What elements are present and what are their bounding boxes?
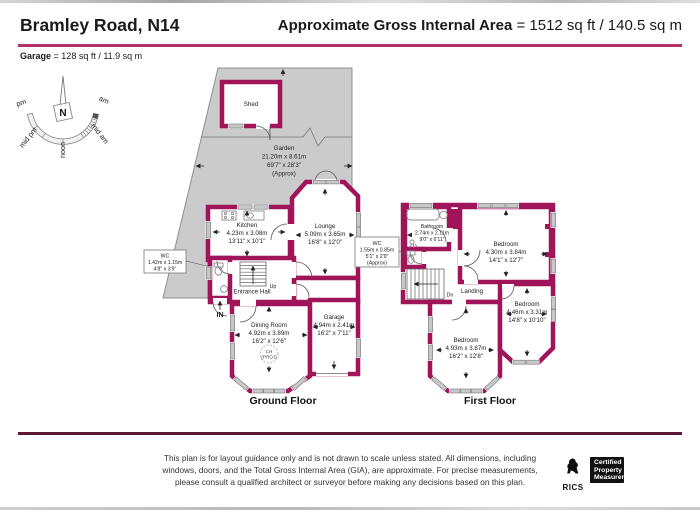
stairs-dn-label: Dn — [447, 293, 454, 299]
compass-noon: noon — [58, 142, 67, 158]
compass-rose: N pm am mid pm noon mid am — [15, 76, 111, 158]
bathroom-imperial: 9'0" x 6'11" — [419, 237, 444, 243]
garage-metric: 4.94m x 2.41m — [314, 322, 355, 329]
svg-text:1.55m x 0.85m: 1.55m x 0.85m — [360, 248, 394, 254]
kitchen-imperial: 13'11" x 10'1" — [229, 238, 266, 245]
entrance-hall-name: Entrance Hall — [233, 289, 270, 296]
bedroom2-imperial: 16'2" x 12'8" — [449, 353, 483, 360]
kitchen-name: Kitchen — [237, 222, 258, 229]
bathroom-metric: 2.74m x 2.11m — [415, 231, 449, 237]
lounge-name: Lounge — [315, 223, 336, 230]
dining-room-shape — [232, 304, 310, 391]
compass-pm: pm — [15, 97, 27, 109]
bedroom1-name: Bedroom — [493, 241, 518, 248]
svg-text:WC: WC — [373, 241, 382, 247]
svg-text:WC: WC — [161, 254, 170, 260]
ground-floor-label: Ground Floor — [249, 395, 316, 407]
lounge-imperial: 16'8" x 12'0" — [308, 239, 342, 246]
compass-mid-am: mid am — [89, 121, 111, 145]
garden-name: Garden — [274, 145, 295, 152]
svg-text:CH: CH — [266, 349, 273, 354]
bedroom1-metric: 4.30m x 3.84m — [486, 249, 527, 256]
garage-name: Garage — [324, 314, 345, 321]
svg-text:5'1" x 2'9": 5'1" x 2'9" — [366, 254, 389, 260]
bathroom-name: Bathroom — [421, 224, 444, 230]
svg-text:4'8" x 3'9": 4'8" x 3'9" — [154, 267, 177, 273]
compass-mid-pm: mid pm — [17, 125, 39, 149]
disclaimer-text: This plan is for layout guidance only an… — [140, 452, 560, 488]
lounge-room — [292, 182, 358, 278]
dining-metric: 4.92m x 3.89m — [249, 330, 290, 337]
compass-am: am — [98, 94, 111, 106]
footer-divider — [18, 432, 682, 435]
shed-name: Shed — [244, 101, 259, 108]
stairs-up-label: Up — [270, 284, 277, 290]
svg-text:1.42m x 1.15m: 1.42m x 1.15m — [148, 260, 182, 266]
bedroom3-imperial: 14'8" x 10'10" — [508, 317, 545, 324]
floorplan-page: Bramley Road, N14 Approximate Gross Inte… — [0, 0, 700, 510]
bedroom2-metric: 4.93m x 3.87m — [446, 345, 487, 352]
rics-logo: RICS — [560, 457, 586, 492]
certified-property-measurer-badge: Certified Property Measurer — [590, 457, 624, 483]
dining-name: Dining Room — [251, 322, 287, 329]
stairs-first — [407, 269, 444, 299]
lounge-metric: 5.09m x 3.65m — [305, 231, 346, 238]
svg-text:(Approx): (Approx) — [367, 261, 387, 267]
rics-wordmark: RICS — [560, 483, 586, 492]
bedroom3-metric: 4.46m x 3.31m — [507, 309, 548, 316]
garden-imperial: 69'7" x 28'3" — [267, 162, 301, 169]
kitchen-metric: 4.23m x 3.08m — [227, 230, 268, 237]
garden-metric: 21.20m x 8.61m — [262, 154, 306, 161]
rics-lion-icon — [563, 457, 583, 477]
first-floor-plan: Bathroom 2.74m x 2.11m 9'0" x 6'11" Bedr… — [355, 203, 557, 408]
entrance-in-label: IN — [217, 312, 224, 319]
dining-imperial: 16'2" x 12'6" — [252, 338, 286, 345]
compass-north: N — [59, 108, 66, 119]
wc-first-callout: WC 1.55m x 0.85m 5'1" x 2'9" (Approx) — [355, 237, 406, 267]
stairs-ground — [240, 262, 266, 286]
wc-room-ground — [210, 258, 230, 298]
garden-approx: (Approx) — [272, 171, 296, 178]
landing-name: Landing — [461, 288, 484, 295]
first-floor-label: First Floor — [464, 395, 516, 407]
bedroom2-name: Bedroom — [453, 337, 478, 344]
bedroom1-imperial: 14'1" x 12'7" — [489, 257, 523, 264]
bedroom3-name: Bedroom — [514, 301, 539, 308]
garage-imperial: 16'2" x 7'11" — [317, 330, 350, 337]
svg-text:(PROJ): (PROJ) — [261, 355, 277, 360]
